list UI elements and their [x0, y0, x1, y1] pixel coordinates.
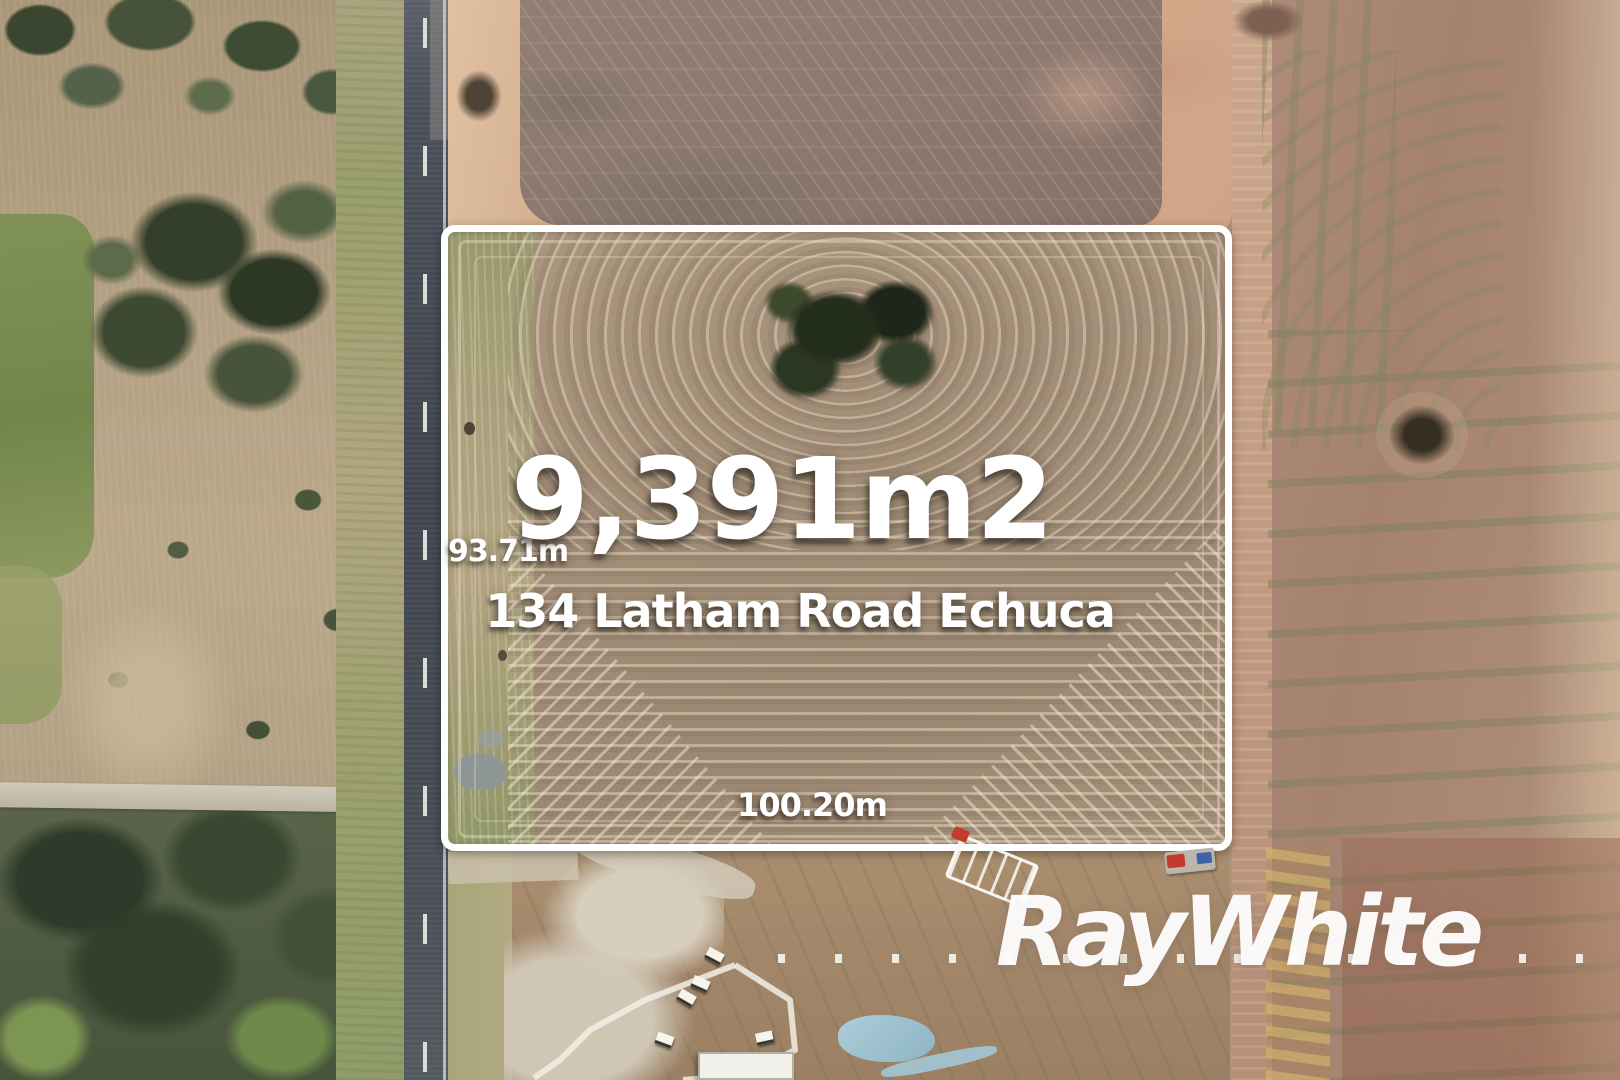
green-pasture-west-lower — [0, 566, 62, 724]
plowed-field-north — [520, 0, 1162, 226]
tractor-tray — [1196, 852, 1212, 865]
area-label: 9,391m2 — [511, 444, 1053, 556]
bushland-top-left — [0, 0, 368, 152]
dark-bush-roadside — [456, 70, 502, 122]
south-dimension-label: 100.20m — [737, 786, 887, 824]
tractor-cab — [1166, 854, 1185, 869]
road-centerline-dashes — [423, 0, 427, 1080]
dark-soil-corner — [1232, 0, 1304, 42]
eucalyptus-canopy — [72, 150, 358, 450]
brand-watermark: RayWhite — [996, 876, 1480, 988]
pale-dirt-patch — [58, 598, 238, 808]
road-verge-west — [336, 0, 404, 1080]
address-label: 134 Latham Road Echuca — [485, 584, 1115, 638]
paddock-tree-hole — [1390, 406, 1454, 464]
white-roof-building — [698, 1052, 794, 1080]
road-resurfaced-patch — [430, 0, 450, 140]
aerial-photo: 93.71m 9,391m2 134 Latham Road Echuca 10… — [0, 0, 1620, 1080]
